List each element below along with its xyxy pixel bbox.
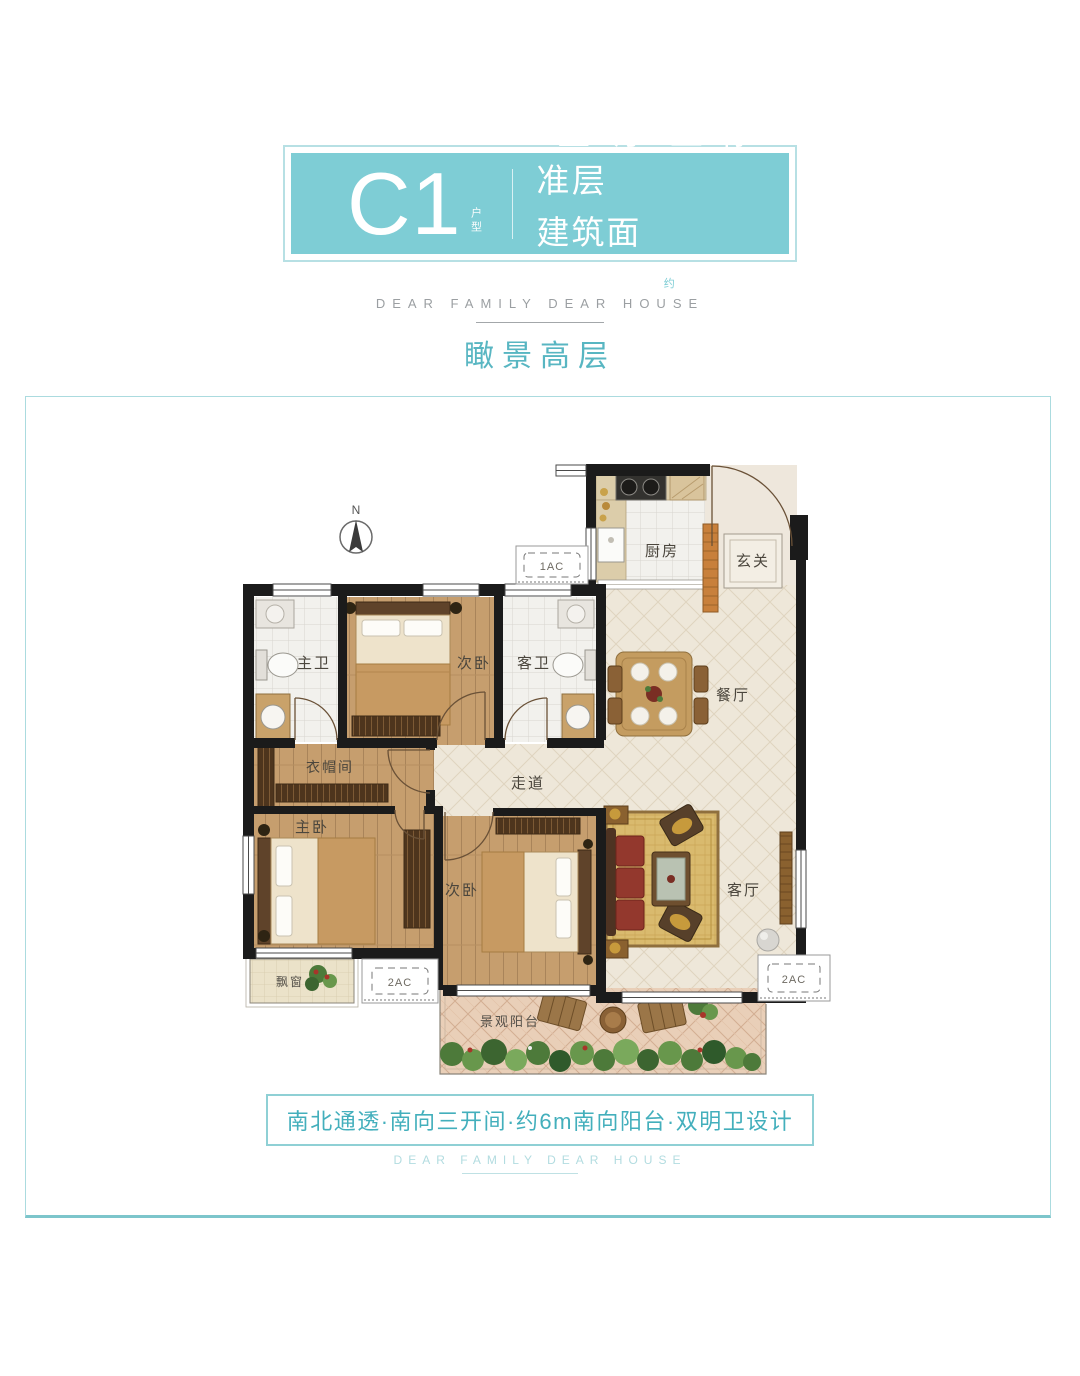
unit-badge: C1 户型 3室2厅2卫·标准层 建筑面积 约 99m 2 — [283, 145, 797, 262]
approx-circle-badge: 约 — [661, 275, 677, 294]
label-bay-window: 飘窗 — [276, 975, 304, 989]
unit-spec-area: 建筑面积 约 99m 2 — [536, 206, 789, 302]
north-arrow: N — [340, 503, 372, 553]
unit-code: C1 — [347, 163, 462, 245]
unit-spec-rooms: 3室2厅2卫·标准层 — [536, 106, 789, 202]
bedroom2-top-furniture — [344, 602, 462, 736]
selling-points-text: 南北通透·南向三开间·约6m南向阳台·双明卫设计 — [287, 1104, 794, 1136]
label-cloakroom: 衣帽间 — [306, 759, 354, 775]
unit-code-suffix: 户型 — [468, 207, 484, 235]
badge-divider — [512, 169, 513, 239]
unit-code-wrap: C1 户型 — [347, 163, 484, 245]
label-ac-bottom-right: 2AC — [782, 974, 806, 986]
tagline-en: DEAR FAMILY DEAR HOUSE — [0, 296, 1080, 311]
master-bedroom-furniture — [258, 824, 430, 944]
floor-plan: N 厨房 玄关 主卫 次卧 客卫 餐厅 衣帽间 走道 主卧 次卧 客厅 飘窗 景… — [230, 440, 880, 1090]
label-bedroom2-bottom: 次卧 — [445, 882, 479, 899]
north-label: N — [352, 503, 361, 517]
label-guest-bath: 客卫 — [517, 655, 551, 672]
footer-tagline-en: DEAR FAMILY DEAR HOUSE — [0, 1153, 1080, 1167]
label-ac-top: 1AC — [540, 561, 564, 573]
label-dining: 餐厅 — [716, 687, 750, 704]
area-label: 建筑面积 — [536, 206, 651, 302]
label-balcony: 景观阳台 — [480, 1014, 540, 1029]
footer-tagline-divider — [462, 1173, 578, 1174]
headline-cn: 瞰景高层 — [0, 331, 1080, 375]
label-living: 客厅 — [727, 882, 761, 899]
label-corridor: 走道 — [511, 775, 545, 792]
unit-specs: 3室2厅2卫·标准层 建筑面积 约 99m 2 — [536, 106, 789, 302]
entry-cabinet — [703, 524, 718, 612]
label-ac-bottom-left: 2AC — [388, 977, 412, 989]
label-master-bath: 主卫 — [297, 655, 331, 672]
label-bedroom2-top: 次卧 — [457, 655, 491, 672]
label-kitchen: 厨房 — [645, 543, 679, 560]
label-entry: 玄关 — [736, 553, 770, 570]
area-exponent: 2 — [779, 262, 790, 282]
unit-badge-inner: C1 户型 3室2厅2卫·标准层 建筑面积 约 99m 2 — [291, 153, 789, 254]
tagline-divider — [476, 322, 604, 323]
floorplan-page: C1 户型 3室2厅2卫·标准层 建筑面积 约 99m 2 DEAR FAMIL… — [0, 0, 1080, 1376]
selling-points-box: 南北通透·南向三开间·约6m南向阳台·双明卫设计 — [266, 1094, 814, 1146]
label-master-bedroom: 主卧 — [295, 819, 329, 836]
